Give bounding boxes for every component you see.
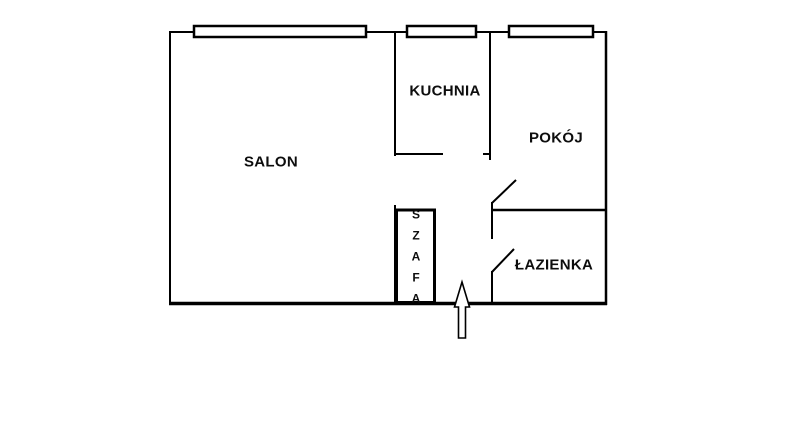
room-label-kuchnia: KUCHNIA <box>409 83 480 100</box>
door-leaf-lazienka <box>492 249 514 272</box>
window-pokoj <box>509 26 593 37</box>
room-label-szafa: SZAFA <box>410 208 422 313</box>
window-salon <box>194 26 366 37</box>
window-kuchnia <box>407 26 476 37</box>
floor-plan-drawing <box>0 0 800 436</box>
room-label-pokoj: POKÓJ <box>529 130 583 147</box>
floor-plan: SALON KUCHNIA POKÓJ ŁAZIENKA SZAFA <box>0 0 800 436</box>
door-leaf-pokoj <box>492 180 516 203</box>
room-label-salon: SALON <box>244 154 298 171</box>
room-label-lazienka: ŁAZIENKA <box>515 257 593 274</box>
entrance-arrow-icon <box>455 282 470 338</box>
